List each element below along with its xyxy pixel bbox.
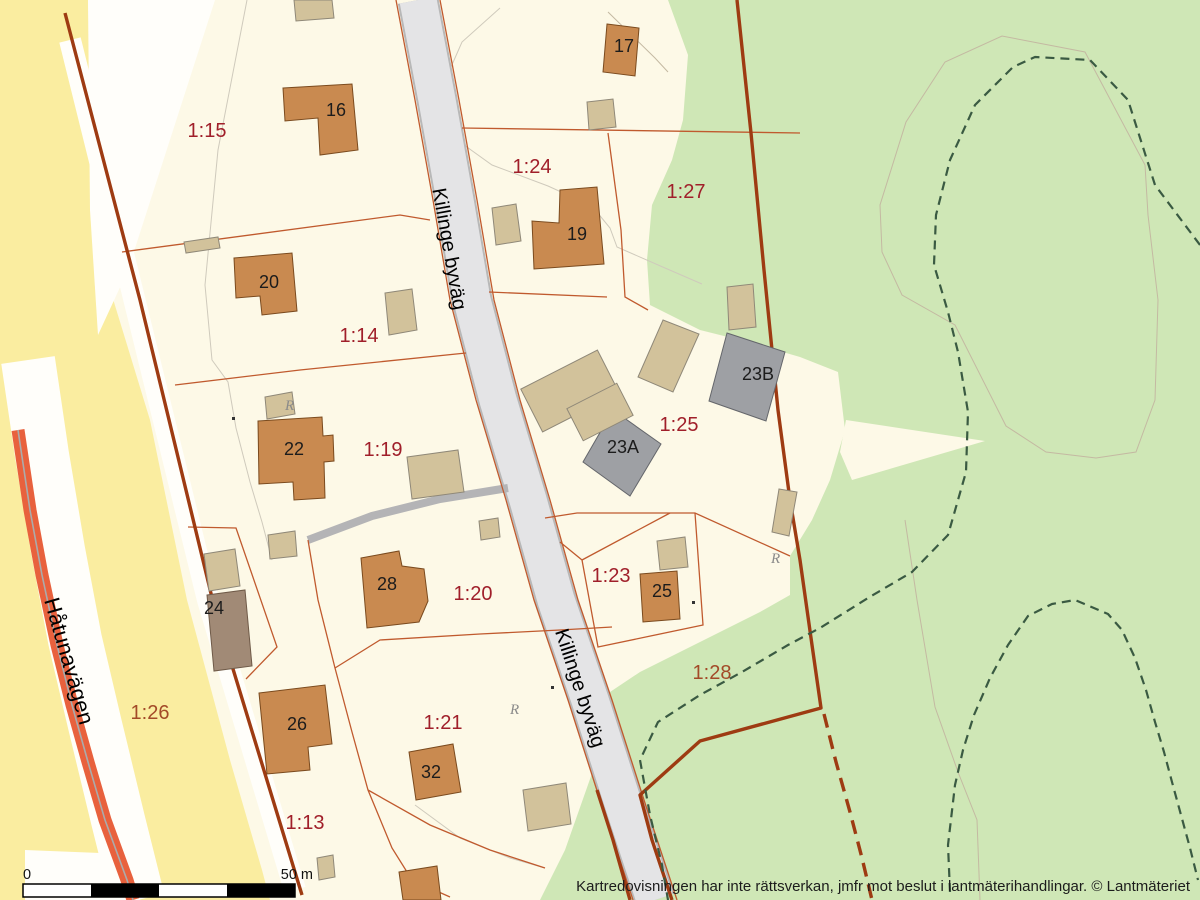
building-label-28: 28 <box>377 574 397 594</box>
parcel-label-1-21: 1:21 <box>424 712 463 734</box>
building-label-16: 16 <box>326 100 346 120</box>
cadastral-map[interactable]: R R R 1:15 1:24 1:27 1:14 1:19 1:25 1:23… <box>0 0 1200 900</box>
scale-label-start: 0 <box>23 867 31 883</box>
building-label-26: 26 <box>287 714 307 734</box>
parcel-label-1-27: 1:27 <box>667 181 706 203</box>
parcel-label-1-23: 1:23 <box>592 565 631 587</box>
map-canvas[interactable]: R R R 1:15 1:24 1:27 1:14 1:19 1:25 1:23… <box>0 0 1200 900</box>
building-label-17: 17 <box>614 36 634 56</box>
parcel-label-1-15: 1:15 <box>188 120 227 142</box>
ancient-remains-symbol: R <box>509 702 519 718</box>
building-label-23B: 23B <box>742 364 774 384</box>
parcel-label-1-13: 1:13 <box>286 812 325 834</box>
ancient-remains-symbol: R <box>770 551 780 567</box>
parcel-label-1-19: 1:19 <box>364 439 403 461</box>
map-disclaimer: Kartredovisningen har inte rättsverkan, … <box>576 878 1191 895</box>
parcel-label-1-25: 1:25 <box>660 414 699 436</box>
parcel-label-1-14: 1:14 <box>340 325 379 347</box>
ancient-remains-symbol: R <box>284 398 294 414</box>
building-label-22: 22 <box>284 439 304 459</box>
building-label-24: 24 <box>204 598 224 618</box>
building-label-20: 20 <box>259 272 279 292</box>
building-label-23A: 23A <box>607 437 639 457</box>
building-bottom-edge <box>399 866 441 900</box>
parcel-label-1-24: 1:24 <box>513 156 552 178</box>
building-label-32: 32 <box>421 762 441 782</box>
parcel-label-1-28: 1:28 <box>693 662 732 684</box>
parcel-label-1-20: 1:20 <box>454 583 493 605</box>
scale-label-end: 50 m <box>281 867 313 883</box>
building-label-19: 19 <box>567 224 587 244</box>
parcel-label-1-26: 1:26 <box>131 702 170 724</box>
building-label-25: 25 <box>652 581 672 601</box>
